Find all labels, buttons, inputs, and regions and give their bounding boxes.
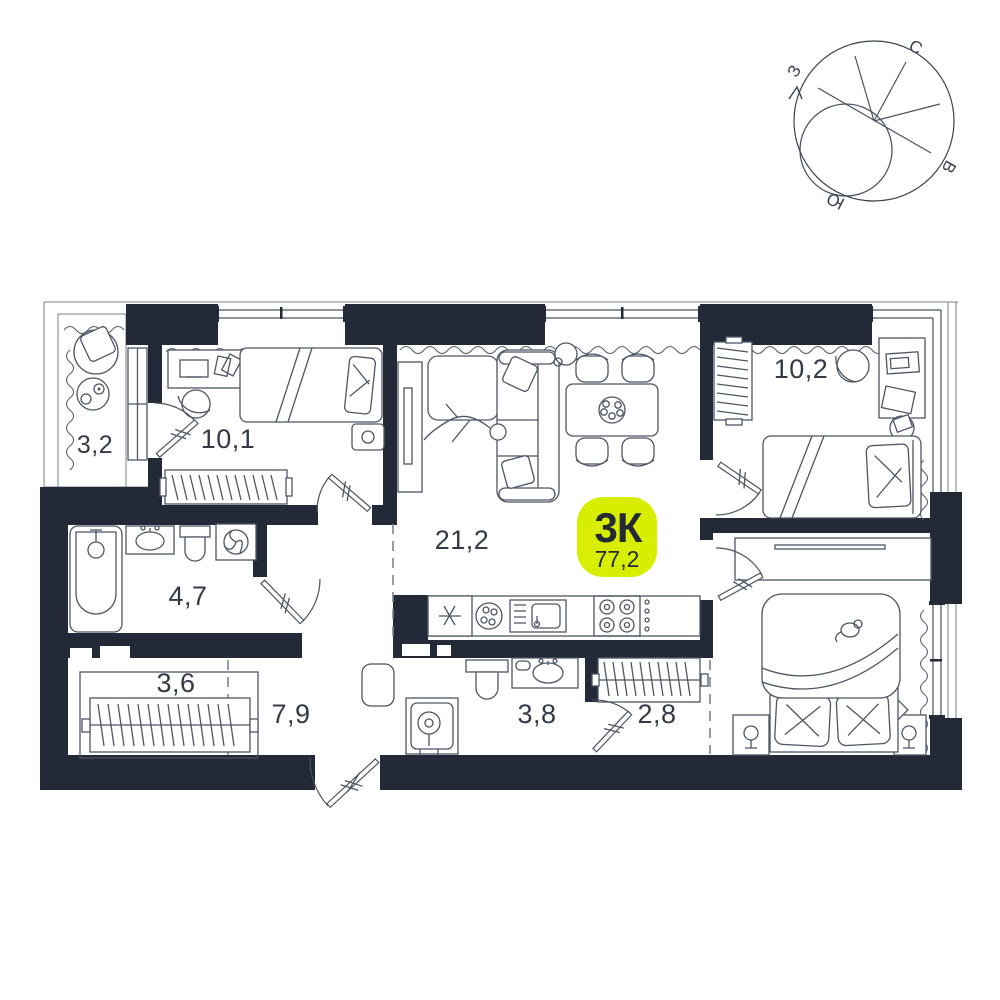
room-label-balcony: 3,2 — [77, 431, 113, 459]
nightstand-icon — [352, 424, 384, 450]
window-master-bedroom — [929, 601, 945, 719]
shower-room-door — [589, 700, 634, 754]
compass-east-label: В — [938, 157, 960, 176]
sink-icon — [126, 526, 174, 554]
window-bedroom-1 — [215, 306, 347, 322]
coffee-table-icon — [77, 378, 109, 410]
sun-glow — [800, 104, 892, 196]
blanket-icon — [762, 594, 900, 698]
nightstand-icon — [733, 715, 769, 755]
sofa-chaise-icon — [428, 356, 498, 420]
compass-arrow-icon — [789, 87, 802, 99]
toilet-icon — [180, 526, 210, 561]
badge-type-label: 3К — [595, 504, 643, 551]
dining-chair-icon — [622, 438, 654, 466]
compass-letters: С В Ю З — [783, 36, 959, 213]
balcony-furniture — [74, 325, 118, 410]
bathroom-door — [258, 576, 320, 626]
entrance-door — [310, 756, 383, 813]
dresser-icon — [735, 538, 931, 580]
badge-area-label: 77,2 — [595, 546, 640, 572]
washing-machine-icon — [216, 524, 256, 560]
dining-chair-icon — [622, 354, 654, 382]
bathroom-fixtures — [70, 524, 256, 632]
radiator-icon — [714, 342, 752, 420]
bedroom-2-door — [716, 458, 764, 515]
floorplan-canvas: 3,2 10,1 21,2 10,2 4,7 3,6 7,9 3,8 2,8 3… — [0, 0, 1000, 1000]
room-label-living-kitchen: 21,2 — [435, 525, 490, 555]
compass-north-label: С — [906, 36, 926, 59]
sink-icon — [512, 658, 578, 688]
room-label-bedroom-2: 10,2 — [774, 354, 829, 384]
dining-table-icon — [566, 384, 658, 436]
apartment-badge: 3К 77,2 — [577, 497, 657, 577]
pillow-icon — [344, 356, 376, 414]
bedroom-1-door — [317, 472, 373, 516]
compass-west-label: З — [783, 62, 805, 81]
desk-chair-icon — [837, 350, 869, 382]
living-room-furniture — [398, 343, 658, 502]
room-label-shower-room: 3,8 — [517, 699, 556, 729]
master-bedroom-furniture — [733, 538, 931, 755]
kitchen-furniture — [428, 596, 700, 636]
room-label-bedroom-1: 10,1 — [201, 424, 256, 454]
bench-icon — [362, 664, 394, 706]
room-label-hallway: 7,9 — [271, 699, 310, 729]
floorplan-svg: 3,2 10,1 21,2 10,2 4,7 3,6 7,9 3,8 2,8 3… — [0, 0, 1000, 1000]
pillow-icon — [866, 444, 911, 508]
room-label-wardrobe: 3,6 — [156, 668, 195, 698]
window-living — [542, 306, 702, 322]
closet-rail-unit — [592, 658, 708, 702]
toilet-icon — [466, 660, 508, 699]
shower-tray-icon — [406, 698, 458, 755]
dining-chair-icon — [576, 438, 608, 466]
room-label-bathroom: 4,7 — [168, 581, 207, 611]
tv-stand-icon — [398, 362, 422, 492]
desk-chair-icon — [182, 390, 210, 418]
compass-rose: С В Ю З — [783, 36, 959, 213]
floor-lamp-icon — [555, 343, 577, 365]
room-label-closet: 2,8 — [637, 699, 676, 729]
desk-icon — [879, 338, 925, 418]
nightstand-icon — [894, 715, 926, 755]
dining-chair-icon — [576, 354, 608, 382]
